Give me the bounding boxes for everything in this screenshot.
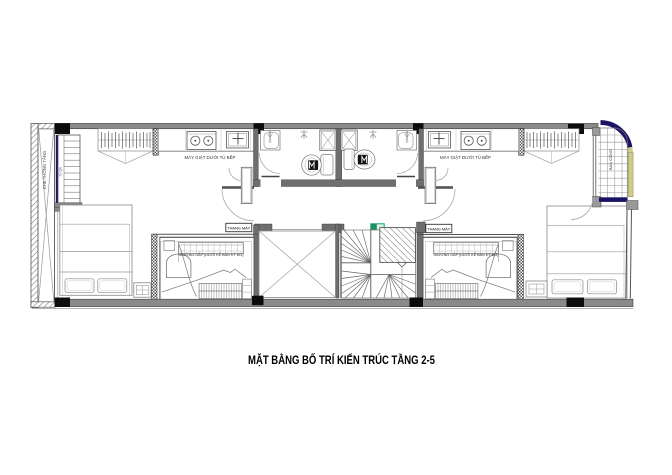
svg-text:MẶT BẰNG BỐ TRÍ KIẾN TRÚC TẦNG: MẶT BẰNG BỐ TRÍ KIẾN TRÚC TẦNG 2-5 <box>248 353 435 367</box>
svg-text:TỦ QA: TỦ QA <box>58 166 63 177</box>
svg-text:KHE THÔNG TẦNG: KHE THÔNG TẦNG <box>42 150 47 189</box>
svg-text:BAN CÔNG: BAN CÔNG <box>608 149 613 170</box>
svg-text:MÁY GIẶT DƯỚI TỦ BẾP: MÁY GIẶT DƯỚI TỦ BẾP <box>440 155 491 160</box>
svg-text:GIƯỜNG GẤP (DƯỚI KÊ BÀN KÝ ĐỒ): GIƯỜNG GẤP (DƯỚI KÊ BÀN KÝ ĐỒ) <box>433 252 498 257</box>
svg-text:MÁY GIẶT DƯỚI TỦ BẾP: MÁY GIẶT DƯỚI TỦ BẾP <box>185 155 236 160</box>
svg-text:THANG MÁY: THANG MÁY <box>427 226 451 231</box>
svg-text:THANG MÁY: THANG MÁY <box>227 225 251 230</box>
svg-text:GIƯỜNG GẤP (DƯỚI KÊ BÀN KÝ ĐỒ): GIƯỜNG GẤP (DƯỚI KÊ BÀN KÝ ĐỒ) <box>178 252 243 257</box>
